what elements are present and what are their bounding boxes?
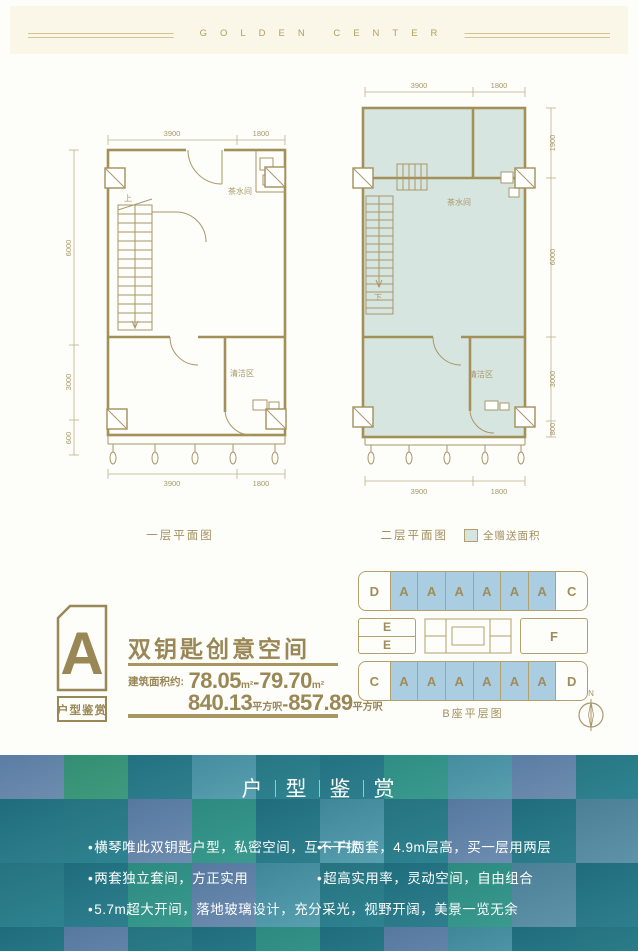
gold-rule-top: [128, 663, 338, 666]
bullet-dot-icon: •: [88, 840, 93, 855]
floor2-walls: [363, 108, 525, 437]
svg-text:6000: 6000: [548, 249, 557, 266]
unit-cell-a: A: [390, 662, 418, 700]
svg-text:3900: 3900: [164, 479, 181, 488]
features-title-char: 赏: [374, 773, 397, 803]
badge-letter: A: [60, 620, 103, 687]
floor2-caption-row: 二层平面图 全赠送面积: [333, 527, 588, 543]
area-label: 建筑面积约:: [128, 676, 184, 688]
floor2-balcony: [365, 437, 525, 464]
title-separator: [319, 780, 320, 797]
svg-text:茶水间: 茶水间: [447, 197, 471, 207]
feature-bullet: •两套独立套间，方正实用: [88, 867, 248, 887]
svg-text:清洁区: 清洁区: [230, 368, 254, 378]
title-separator: [275, 780, 276, 797]
floor1-left-dimension: 6000 3000 600: [64, 150, 79, 455]
svg-text:清洁区: 清洁区: [469, 369, 493, 379]
unit-cell-e: E: [359, 619, 415, 636]
unit-cell-e: E: [359, 636, 415, 654]
badge-caption: 户型鉴赏: [57, 703, 107, 717]
svg-text:上: 上: [124, 194, 132, 203]
floor1-columns: [105, 167, 286, 429]
unit-cell: C: [359, 662, 390, 700]
area-sqft-from: 840.13: [188, 690, 252, 715]
title-separator: [363, 780, 364, 797]
north-compass-icon: N: [576, 686, 606, 734]
bullet-dot-icon: •: [88, 871, 93, 886]
bullet-dot-icon: •: [317, 871, 322, 886]
floor2-plan: 3900 1800 1900 6000 3000 800: [333, 76, 588, 501]
unit-cell: C: [555, 572, 587, 610]
unit-cell-a: A: [528, 662, 556, 700]
feature-text: 一户两套，4.9m层高，买一层用两层: [323, 840, 551, 855]
floor1-caption: 一层平面图: [60, 527, 300, 543]
unit-cell-a: A: [473, 662, 501, 700]
feature-bullet: •超高实用率，灵动空间，自由组合: [317, 867, 533, 887]
svg-text:1800: 1800: [253, 129, 270, 138]
svg-text:3900: 3900: [411, 487, 428, 496]
sqft-unit: 平方呎: [252, 702, 282, 713]
unit-cell-a: A: [445, 662, 473, 700]
svg-text:800: 800: [548, 423, 557, 436]
bullet-dot-icon: •: [317, 840, 322, 855]
gift-area-swatch-icon: [464, 529, 478, 542]
unit-title: 双钥匙创意空间: [128, 630, 338, 664]
compass-north-label: N: [588, 689, 594, 698]
core-elevator-diagram: [424, 618, 512, 654]
floor1-plan: 3900 1800 6000 3000 600: [60, 122, 300, 490]
svg-text:茶水间: 茶水间: [228, 186, 252, 196]
unit-cell-a: A: [500, 572, 528, 610]
features-title-char: 户: [242, 773, 265, 803]
bullet-dot-icon: •: [88, 902, 93, 917]
header-band: GOLDEN CENTER: [10, 6, 628, 54]
unit-cell-a: A: [528, 572, 556, 610]
floor2-top-dimension: 3900 1800: [365, 81, 525, 97]
unit-cell-a: A: [417, 662, 445, 700]
building-layout-caption: B座平层图: [358, 705, 588, 721]
unit-cell-a: A: [473, 572, 501, 610]
gift-area-legend: 全赠送面积: [464, 528, 541, 543]
svg-text:3900: 3900: [164, 129, 181, 138]
features-title-char: 鉴: [330, 773, 353, 803]
floor1-bottom-dimension: 3900 1800: [108, 469, 285, 488]
svg-text:600: 600: [64, 432, 73, 445]
feature-text: 超高实用率，灵动空间，自由组合: [323, 871, 533, 886]
floor1-balcony: [108, 435, 285, 464]
brand-name: GOLDEN CENTER: [174, 28, 465, 39]
svg-text:1900: 1900: [548, 135, 557, 152]
unit-cell-a: A: [417, 572, 445, 610]
floor1-clean-area: 清洁区: [230, 368, 279, 410]
unit-block-e: E E: [358, 618, 416, 654]
floor2-caption: 二层平面图: [381, 527, 449, 543]
unit-cell-a: A: [500, 662, 528, 700]
building-middle-row: E E F: [358, 618, 588, 654]
feature-bullet: •5.7m超大开间，落地玻璃设计，充分采光，视野开阔，美景一览无余: [88, 898, 518, 918]
floor2-bottom-dimension: 3900 1800: [365, 476, 525, 496]
features-section: 户 型 鉴 赏 •横琴唯此双钥匙户型，私密空间，互不干扰 •一户两套，4.9m层…: [0, 755, 638, 951]
unit-cell: D: [359, 572, 390, 610]
feature-bullet: •一户两套，4.9m层高，买一层用两层: [317, 836, 551, 856]
floor1-top-dimension: 3900 1800: [108, 129, 285, 145]
svg-text:1800: 1800: [491, 487, 508, 496]
unit-cell-a: A: [445, 572, 473, 610]
features-title-char: 型: [286, 773, 309, 803]
svg-text:3000: 3000: [548, 371, 557, 388]
gold-rule-bottom: [128, 714, 338, 718]
gift-area-legend-label: 全赠送面积: [483, 528, 541, 543]
unit-cell-a: A: [390, 572, 418, 610]
unit-badge: A 户型鉴赏: [56, 604, 108, 724]
building-top-row: D A A A A A A C: [358, 571, 588, 611]
building-bottom-row: C A A A A A A D: [358, 661, 588, 701]
svg-text:1800: 1800: [491, 81, 508, 90]
svg-text:3900: 3900: [411, 81, 428, 90]
features-title: 户 型 鉴 赏: [0, 773, 638, 803]
svg-text:下: 下: [374, 293, 382, 302]
building-layout: D A A A A A A C E E F C: [358, 571, 588, 701]
feature-text: 两套独立套间，方正实用: [94, 871, 248, 886]
floor1-stairs: 上: [118, 194, 152, 330]
floor2-right-dimension: 1900 6000 3000 800: [546, 108, 557, 437]
svg-text:6000: 6000: [64, 240, 73, 257]
svg-text:1800: 1800: [253, 479, 270, 488]
svg-text:3000: 3000: [64, 374, 73, 391]
brochure-page: GOLDEN CENTER 3900 1800 6000 3000 600: [0, 0, 638, 951]
unit-cell-f: F: [520, 618, 588, 654]
feature-text: 5.7m超大开间，落地玻璃设计，充分采光，视野开阔，美景一览无余: [94, 902, 518, 917]
area-sqft-to: 857.89: [288, 690, 352, 715]
